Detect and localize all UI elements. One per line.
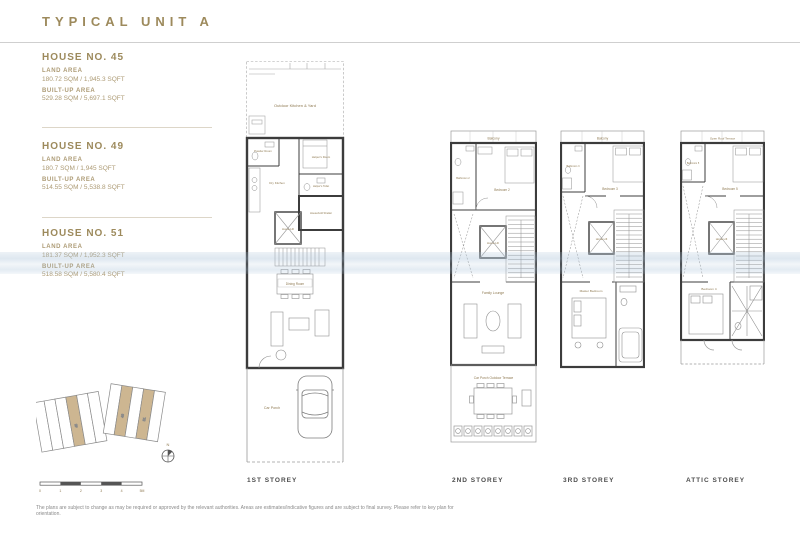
built-up-value: 518.58 SQM / 5,580.4 SQFT xyxy=(42,271,217,278)
room-label-dining-room: Dining Room xyxy=(286,282,305,286)
north-compass-icon: N xyxy=(162,442,174,462)
divider xyxy=(42,127,212,128)
room-label-bathroom-3: Bathroom 3 xyxy=(567,165,581,168)
divider xyxy=(42,217,212,218)
room-label-home-lift: Home Lift xyxy=(596,237,608,241)
room-label-household-shelter: Household Shelter xyxy=(310,211,332,215)
title-rule xyxy=(0,42,800,43)
disclaimer-text: The plans are subject to change as may b… xyxy=(36,505,476,517)
built-up-label: BUILT-UP AREA xyxy=(42,177,217,183)
scale-bar: 0 1 2 3 4 5M xyxy=(39,482,144,493)
land-area-label: LAND AREA xyxy=(42,68,217,74)
room-label-home-lift: Home Lift xyxy=(487,241,499,245)
floor-plan-3rd-storey: Balcony xyxy=(560,130,645,370)
house-49-specs: HOUSE NO. 49 LAND AREA 180.7 SQM / 1,945… xyxy=(42,141,217,191)
land-area-value: 181.37 SQM / 1,952.3 SQFT xyxy=(42,252,217,259)
room-label-car-porch: Car Porch xyxy=(264,406,280,410)
key-plan-lot-49: 49 xyxy=(120,414,125,419)
built-up-value: 514.55 SQM / 5,538.8 SQFT xyxy=(42,184,217,191)
house-name: HOUSE NO. 45 xyxy=(42,52,217,63)
room-label-balcony: Balcony xyxy=(487,137,499,141)
brochure-page: TYPICAL UNIT A HOUSE NO. 45 LAND AREA 18… xyxy=(0,0,800,543)
scale-tick: 4 xyxy=(121,489,123,493)
room-label-open-roof-terrace: Open Roof Terrace xyxy=(710,137,736,141)
scale-tick: 0 xyxy=(39,489,41,493)
room-label-bedroom-3: Bedroom 3 xyxy=(602,187,618,191)
land-area-label: LAND AREA xyxy=(42,157,217,163)
storey-caption-2nd: 2ND STOREY xyxy=(452,477,503,484)
room-label-bedroom-4: Bedroom 4 xyxy=(701,287,716,291)
built-up-value: 529.28 SQM / 5,697.1 SQFT xyxy=(42,95,217,102)
room-label-bathroom-2: Bathroom 2 xyxy=(456,176,470,180)
room-label-powder-room: Powder Room xyxy=(254,149,272,153)
scale-tick: 5M xyxy=(140,489,145,493)
room-label-family-lounge: Family Lounge xyxy=(482,291,504,295)
land-area-value: 180.72 SQM / 1,945.3 SQFT xyxy=(42,76,217,83)
room-label-bedroom-2: Bedroom 2 xyxy=(494,188,510,192)
floor-plan-1st-storey: Outdoor Kitchen & Yard xyxy=(245,60,345,467)
house-name: HOUSE NO. 51 xyxy=(42,228,217,239)
land-area-label: LAND AREA xyxy=(42,244,217,250)
key-plan-lot-51: 51 xyxy=(142,417,147,422)
house-51-specs: HOUSE NO. 51 LAND AREA 181.37 SQM / 1,95… xyxy=(42,228,217,278)
built-up-label: BUILT-UP AREA xyxy=(42,264,217,270)
scale-tick: 1 xyxy=(59,489,61,493)
scale-tick: 2 xyxy=(80,489,82,493)
house-name: HOUSE NO. 49 xyxy=(42,141,217,152)
land-area-value: 180.7 SQM / 1,945 SQFT xyxy=(42,165,217,172)
room-label-bedroom-5: Bedroom 5 xyxy=(722,187,738,191)
storey-caption-attic: ATTIC STOREY xyxy=(686,477,745,484)
scale-tick: 3 xyxy=(100,489,102,493)
room-label-master-bedroom: Master Bedroom xyxy=(580,289,603,293)
room-label-home-lift: Home Lift xyxy=(282,227,294,231)
room-label-helpers-room: Helper's Room xyxy=(312,155,331,159)
floor-plan-2nd-storey: Balcony xyxy=(450,130,537,445)
house-45-specs: HOUSE NO. 45 LAND AREA 180.72 SQM / 1,94… xyxy=(42,52,217,102)
room-label-balcony: Balcony xyxy=(597,137,609,141)
page-title: TYPICAL UNIT A xyxy=(42,14,214,29)
room-label-outdoor-kitchen-yard: Outdoor Kitchen & Yard xyxy=(274,103,316,108)
key-plan-lot-45: 45 xyxy=(74,423,79,428)
key-plan-lots: 45 49 51 xyxy=(36,384,165,452)
north-label: N xyxy=(167,442,170,447)
key-plan: 45 49 51 N 0 1 2 3 4 xyxy=(36,368,186,500)
room-label-dry-kitchen: Dry Kitchen xyxy=(269,181,285,185)
storey-caption-1st: 1ST STOREY xyxy=(247,477,297,484)
room-label-car-porch-outdoor-terrace: Car Porch Outdoor Terrace xyxy=(474,376,514,380)
floor-plan-attic-storey: Open Roof Terrace xyxy=(680,130,765,370)
room-label-helpers-toilet: Helper's Toilet xyxy=(313,184,329,188)
storey-caption-3rd: 3RD STOREY xyxy=(563,477,614,484)
room-label-bathroom-5: Bathroom 5 xyxy=(687,162,700,165)
room-label-home-lift: Home Lift xyxy=(716,237,728,241)
built-up-label: BUILT-UP AREA xyxy=(42,88,217,94)
